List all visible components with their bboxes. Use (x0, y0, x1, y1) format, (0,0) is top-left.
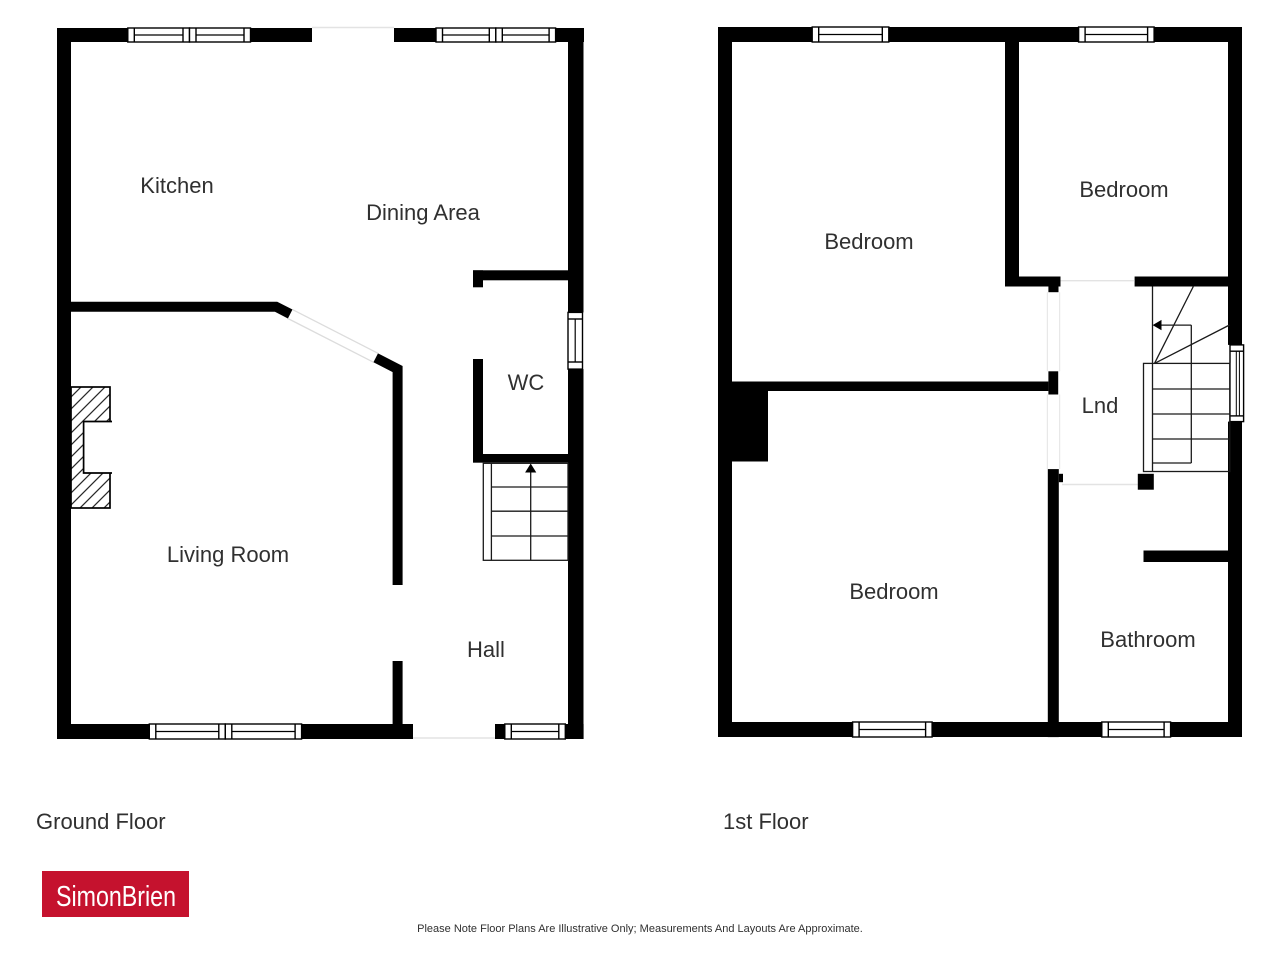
svg-text:Ground Floor: Ground Floor (36, 809, 166, 834)
svg-text:WC: WC (508, 370, 545, 395)
svg-text:Kitchen: Kitchen (140, 173, 213, 198)
svg-text:Dining Area: Dining Area (366, 200, 481, 225)
svg-text:Bedroom: Bedroom (849, 579, 938, 604)
svg-text:Please Note Floor Plans Are Il: Please Note Floor Plans Are Illustrative… (417, 923, 863, 935)
svg-text:Lnd: Lnd (1082, 393, 1119, 418)
svg-text:Living Room: Living Room (167, 542, 289, 567)
svg-text:Bedroom: Bedroom (824, 229, 913, 254)
svg-text:SimonBrien: SimonBrien (56, 881, 176, 913)
svg-text:Bathroom: Bathroom (1100, 627, 1195, 652)
svg-text:Bedroom: Bedroom (1079, 177, 1168, 202)
svg-text:Hall: Hall (467, 637, 505, 662)
svg-text:1st Floor: 1st Floor (723, 809, 809, 834)
